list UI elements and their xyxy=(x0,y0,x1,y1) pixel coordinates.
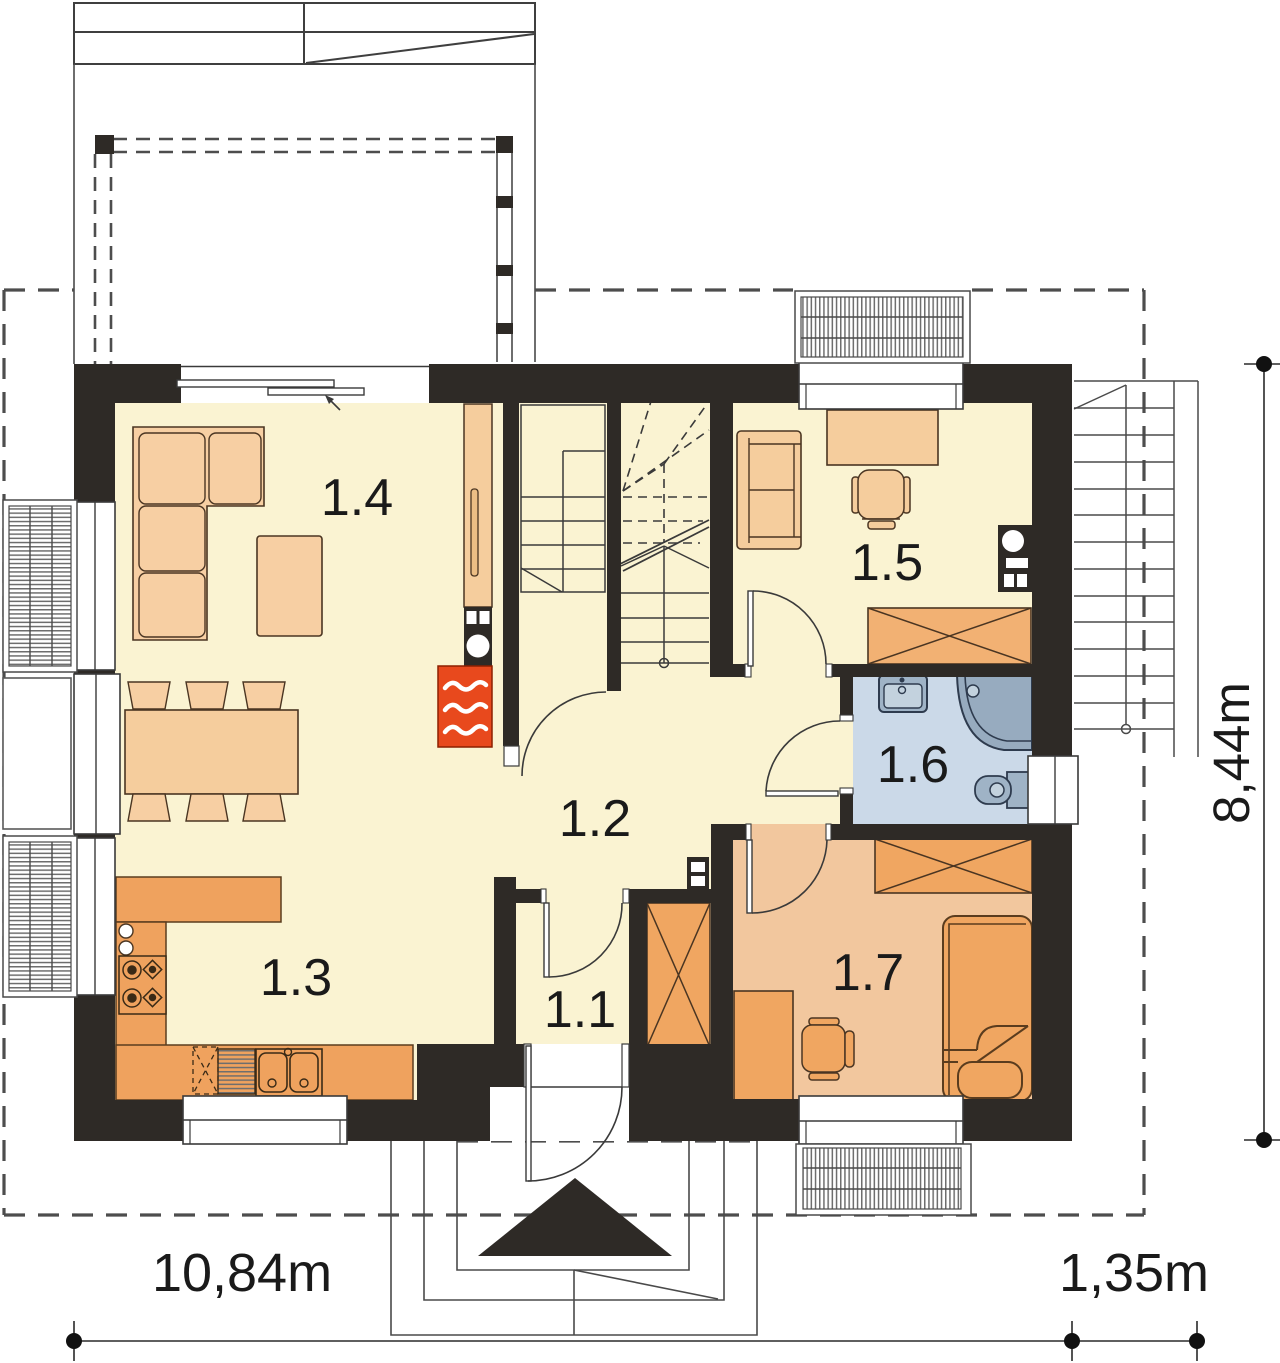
svg-text:10,84m: 10,84m xyxy=(152,1243,332,1303)
svg-text:1.5: 1.5 xyxy=(851,534,923,592)
svg-text:1.7: 1.7 xyxy=(832,944,904,1002)
svg-text:1,35m: 1,35m xyxy=(1059,1243,1209,1303)
svg-text:1.2: 1.2 xyxy=(559,790,631,848)
svg-text:1.6: 1.6 xyxy=(877,736,949,794)
svg-text:1.4: 1.4 xyxy=(321,469,393,527)
svg-text:8,44m: 8,44m xyxy=(1203,682,1260,824)
svg-text:1.3: 1.3 xyxy=(260,949,332,1007)
svg-text:1.1: 1.1 xyxy=(544,981,616,1039)
